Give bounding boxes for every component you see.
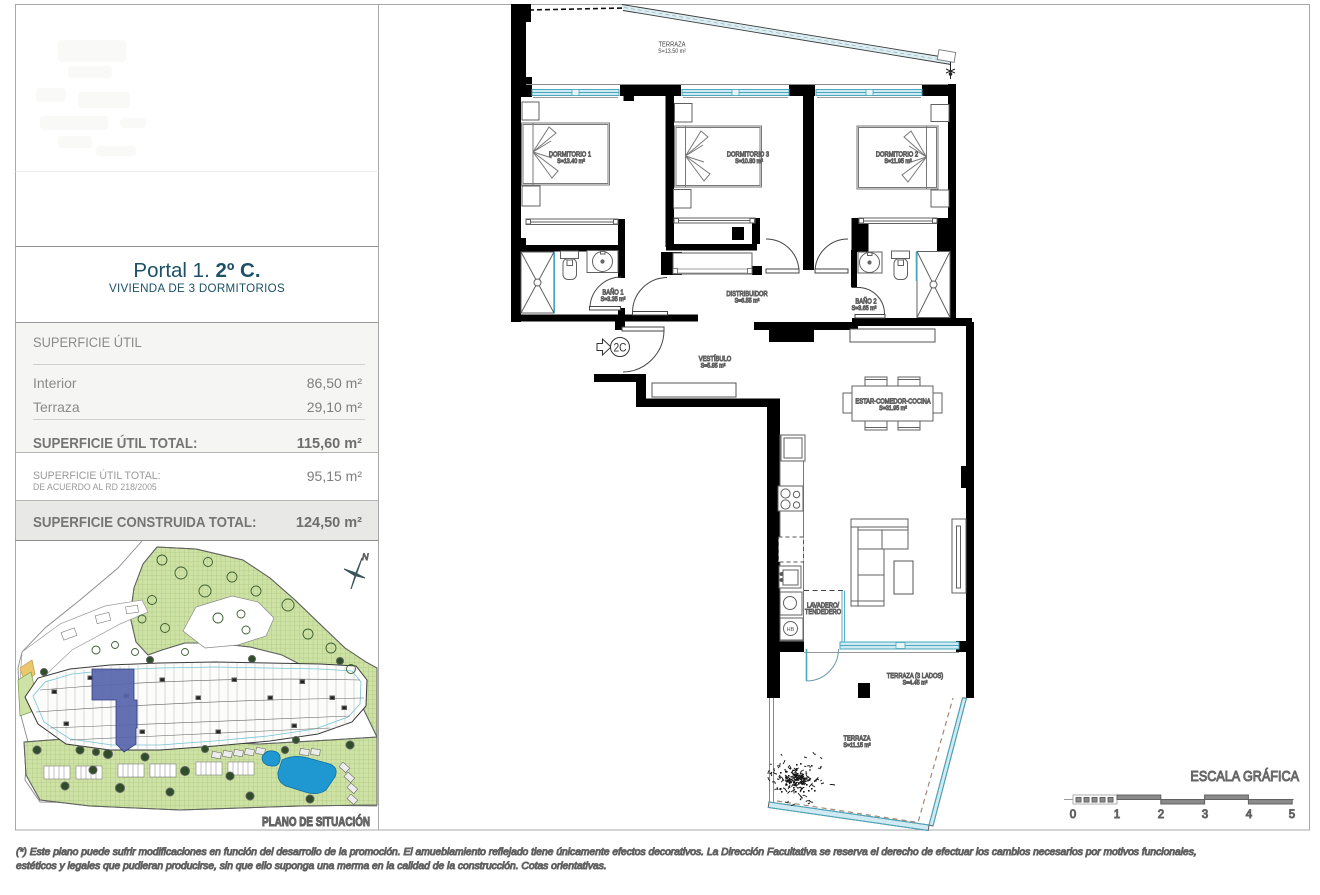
svg-text:SUPERFICIE ÚTIL: SUPERFICIE ÚTIL <box>33 335 142 351</box>
svg-text:HB: HB <box>787 627 795 633</box>
svg-text:DISTRIBUIDOR: DISTRIBUIDOR <box>726 290 768 298</box>
svg-text:DORMITORIO 2: DORMITORIO 2 <box>876 151 918 159</box>
svg-text:S=5.85 m²: S=5.85 m² <box>701 363 726 370</box>
svg-text:SUPERFICIE ÚTIL TOTAL:: SUPERFICIE ÚTIL TOTAL: <box>33 469 161 483</box>
svg-text:DORMITORIO 3: DORMITORIO 3 <box>727 151 769 159</box>
svg-text:TERRAZA: TERRAZA <box>659 41 686 49</box>
svg-text:Terraza: Terraza <box>33 399 80 415</box>
svg-text:TERRAZA (3 LADOS): TERRAZA (3 LADOS) <box>887 672 943 680</box>
svg-text:0: 0 <box>1070 809 1076 821</box>
svg-text:TERRAZA: TERRAZA <box>844 735 871 743</box>
svg-text:S=3.65 m²: S=3.65 m² <box>852 306 877 313</box>
svg-text:3: 3 <box>1202 809 1208 821</box>
svg-text:124,50 m²: 124,50 m² <box>296 515 362 531</box>
svg-text:29,10 m²: 29,10 m² <box>307 399 363 415</box>
svg-text:86,50 m²: 86,50 m² <box>307 375 363 391</box>
svg-text:VIVIENDA DE 3 DORMITORIOS: VIVIENDA DE 3 DORMITORIOS <box>109 282 285 295</box>
svg-text:4: 4 <box>1246 809 1253 821</box>
svg-text:115,60 m²: 115,60 m² <box>297 436 362 452</box>
svg-text:Interior: Interior <box>33 375 77 391</box>
svg-text:S=11.15 m²: S=11.15 m² <box>843 743 870 750</box>
svg-text:ESCALA GRÁFICA: ESCALA GRÁFICA <box>1190 768 1299 784</box>
svg-text:TENDEDERO: TENDEDERO <box>805 608 841 616</box>
svg-text:N: N <box>362 552 369 562</box>
svg-text:SUPERFICIE ÚTIL TOTAL:: SUPERFICIE ÚTIL TOTAL: <box>33 433 197 451</box>
svg-text:Portal 1. 2º C.: Portal 1. 2º C. <box>133 259 260 282</box>
svg-text:DE ACUERDO AL RD 218/2005: DE ACUERDO AL RD 218/2005 <box>33 482 157 492</box>
svg-text:S=31.95 m²: S=31.95 m² <box>879 406 907 413</box>
svg-text:S=10.80 m²: S=10.80 m² <box>735 159 763 166</box>
svg-text:(*) Este plano puede sufrir mo: (*) Este plano puede sufrir modificacion… <box>16 847 1197 858</box>
svg-text:VESTÍBULO: VESTÍBULO <box>699 353 731 363</box>
svg-text:S=6.55 m²: S=6.55 m² <box>735 298 760 305</box>
svg-text:BAÑO 2: BAÑO 2 <box>855 296 876 306</box>
svg-text:PLANO DE SITUACIÓN: PLANO DE SITUACIÓN <box>262 815 370 830</box>
svg-text:BAÑO 1: BAÑO 1 <box>602 287 623 297</box>
svg-text:5: 5 <box>1289 809 1295 821</box>
svg-text:SUPERFICIE CONSTRUIDA TOTAL:: SUPERFICIE CONSTRUIDA TOTAL: <box>33 513 256 530</box>
svg-text:DORMITORIO 1: DORMITORIO 1 <box>549 151 591 159</box>
svg-text:ESTAR-COMEDOR-COCINA: ESTAR-COMEDOR-COCINA <box>855 398 931 406</box>
svg-text:95,15 m²: 95,15 m² <box>307 468 363 484</box>
svg-text:1: 1 <box>1114 809 1120 821</box>
svg-text:S=11.95 m²: S=11.95 m² <box>884 159 911 166</box>
svg-text:S=13.50 m²: S=13.50 m² <box>658 49 686 56</box>
svg-text:2C: 2C <box>613 342 626 355</box>
svg-text:estéticos y legales que pudier: estéticos y legales que pudieran produci… <box>16 861 607 872</box>
svg-text:S=3.35 m²: S=3.35 m² <box>601 297 626 304</box>
svg-text:S=13.40 m²: S=13.40 m² <box>557 159 585 166</box>
svg-text:2: 2 <box>1158 809 1164 821</box>
svg-text:S=4.45 m²: S=4.45 m² <box>903 680 928 687</box>
